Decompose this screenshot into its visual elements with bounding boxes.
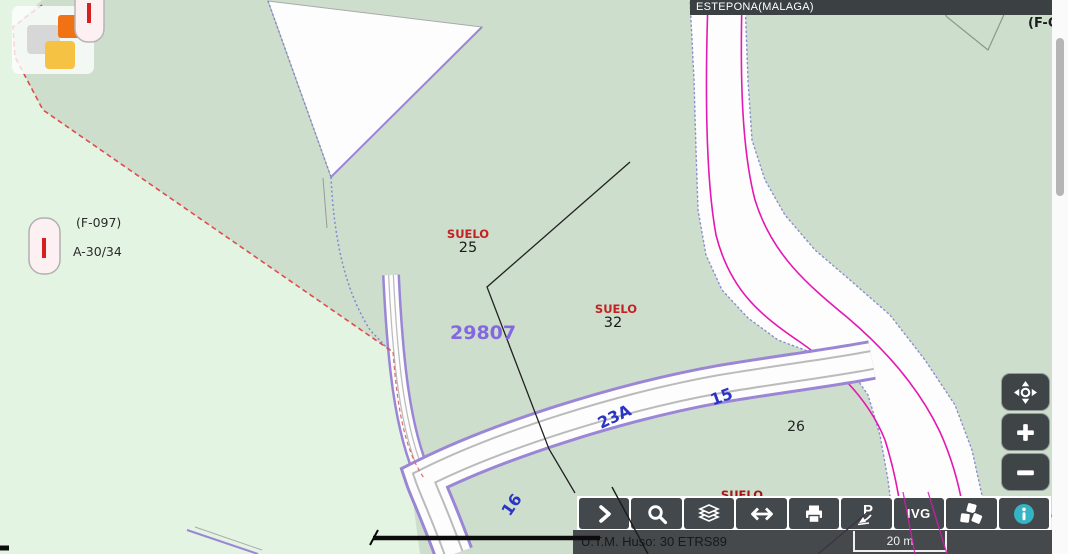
ivg-button[interactable]: IVG xyxy=(894,498,944,529)
expand-toolbar-button[interactable] xyxy=(579,498,629,529)
zoom-out-button[interactable] xyxy=(1001,453,1050,491)
info-button[interactable] xyxy=(999,498,1049,529)
measure-button[interactable] xyxy=(736,498,786,529)
label-29807: 29807 xyxy=(450,322,516,344)
minus-icon xyxy=(1014,461,1037,484)
printer-icon xyxy=(802,502,826,526)
label-25: 25 xyxy=(459,240,477,256)
map-canvas[interactable]: SUELO 25 SUELO 32 29807 26 SUELO (F-097)… xyxy=(0,0,1068,554)
double-arrow-icon xyxy=(749,502,775,526)
ivg-label: IVG xyxy=(907,506,931,521)
status-bar: U.T.M. Huso: 30 ETRS89 20 m xyxy=(573,530,1052,554)
label-suelo-32: SUELO xyxy=(595,302,637,316)
municipality-banner: ESTEPONA(MALAGA) xyxy=(690,0,1052,15)
pegman-button[interactable]: P xyxy=(841,498,891,529)
layers-button[interactable] xyxy=(684,498,734,529)
scrollbar-thumb[interactable] xyxy=(1056,38,1064,196)
cubes-button[interactable] xyxy=(946,498,996,529)
p-arrow-icon: P xyxy=(853,501,879,527)
layers-icon xyxy=(696,502,722,526)
municipality-name: ESTEPONA(MALAGA) xyxy=(696,1,814,13)
projection-label: U.T.M. Huso: 30 ETRS89 xyxy=(581,530,727,554)
cubes-icon xyxy=(957,501,985,527)
bottom-toolbar: P IVG xyxy=(577,496,1051,531)
scrollbar-track[interactable] xyxy=(1052,0,1068,554)
label-a3034: A-30/34 xyxy=(73,244,122,259)
info-icon xyxy=(1012,502,1036,526)
cadastral-map-viewer: SUELO 25 SUELO 32 29807 26 SUELO (F-097)… xyxy=(0,0,1068,554)
print-button[interactable] xyxy=(789,498,839,529)
svg-text:P: P xyxy=(863,502,873,519)
label-suelo-25: SUELO xyxy=(447,227,489,241)
label-f097: (F-097) xyxy=(76,215,121,230)
zoom-in-button[interactable] xyxy=(1001,413,1050,451)
scale-label: 20 m xyxy=(887,534,914,548)
chevron-right-icon xyxy=(592,502,616,526)
plus-icon xyxy=(1014,421,1037,444)
label-32: 32 xyxy=(604,315,622,331)
pan-icon xyxy=(1014,381,1037,404)
magnifier-icon xyxy=(645,502,669,526)
label-26: 26 xyxy=(787,419,805,435)
search-button[interactable] xyxy=(631,498,681,529)
milestone-marker-left xyxy=(29,218,60,274)
pan-button[interactable] xyxy=(1001,373,1050,411)
scale-bar: 20 m xyxy=(853,531,947,552)
milestone-marker-top xyxy=(75,0,104,42)
